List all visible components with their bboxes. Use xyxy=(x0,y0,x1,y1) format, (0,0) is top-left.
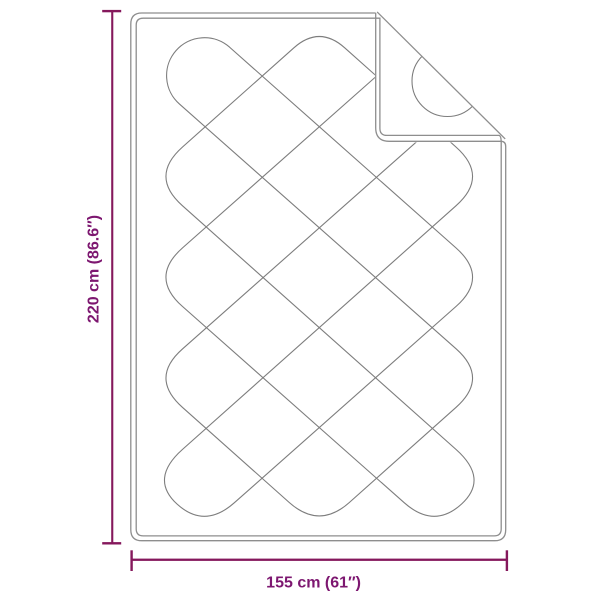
svg-text:220 cm (86.6″): 220 cm (86.6″) xyxy=(86,215,103,323)
svg-text:155 cm (61″): 155 cm (61″) xyxy=(266,575,361,592)
